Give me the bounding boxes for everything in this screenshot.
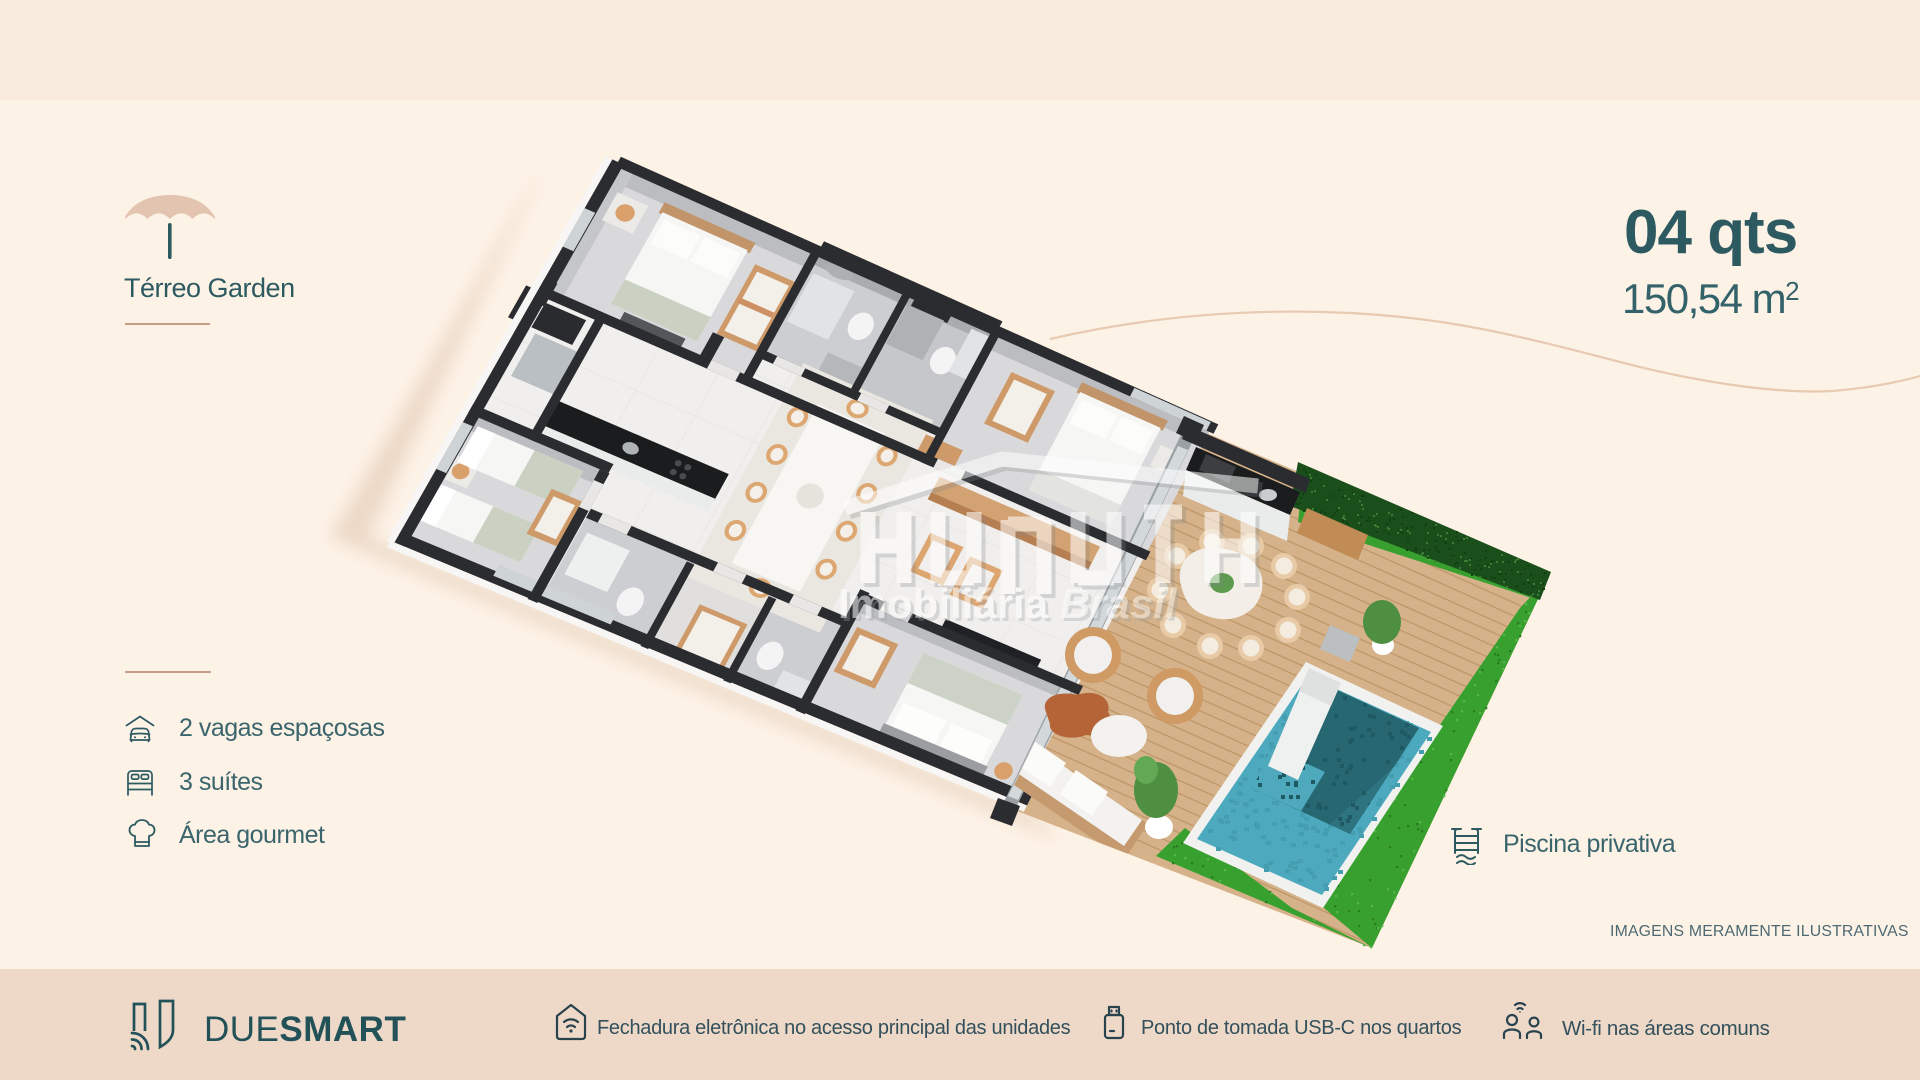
svg-text:Imobiliária Brasil: Imobiliária Brasil [838, 580, 1178, 627]
